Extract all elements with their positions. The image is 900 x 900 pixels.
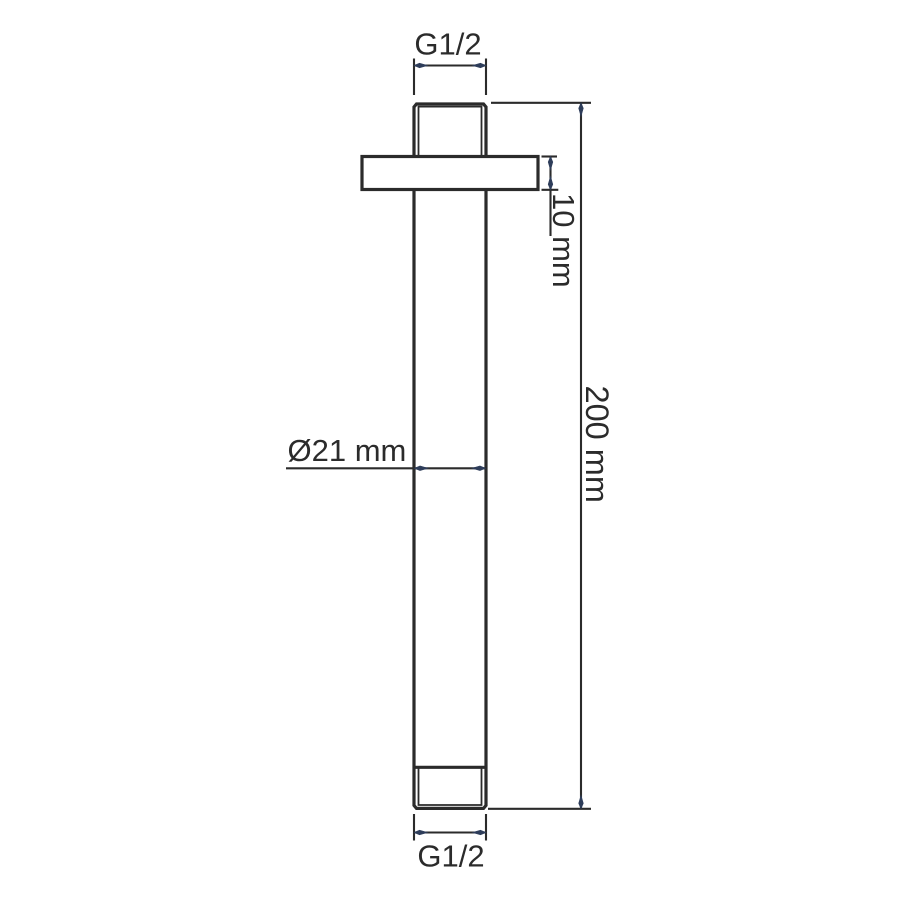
svg-text:10 mm: 10 mm [546, 193, 581, 288]
svg-text:G1/2: G1/2 [414, 27, 481, 62]
svg-text:G1/2: G1/2 [417, 839, 484, 874]
svg-text:200 mm: 200 mm [579, 386, 615, 503]
svg-text:Ø21 mm: Ø21 mm [288, 433, 407, 468]
